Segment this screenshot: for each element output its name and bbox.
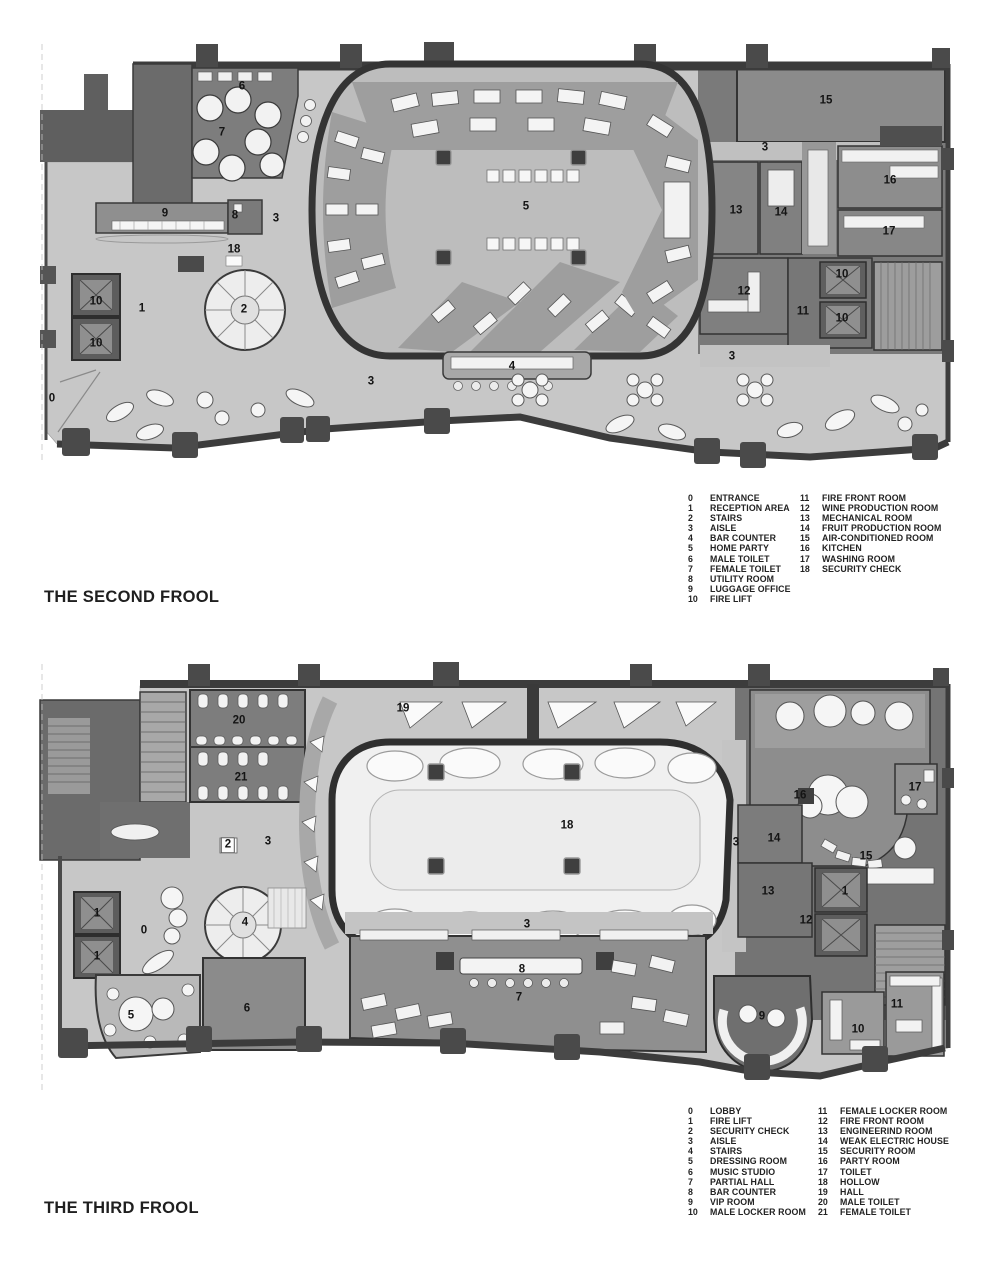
legend-number: 21: [818, 1207, 840, 1217]
legend-number: 18: [800, 564, 822, 574]
legend-label: MUSIC STUDIO: [710, 1167, 775, 1177]
legend-row: 18SECURITY CHECK: [800, 564, 941, 574]
plan2-spiral-stair: [205, 270, 285, 350]
legend-label: LUGGAGE OFFICE: [710, 584, 791, 594]
third-floor-plan-drawing: [0, 660, 1000, 1090]
legend-label: FRUIT PRODUCTION ROOM: [822, 523, 941, 533]
legend-label: PARTIAL HALL: [710, 1177, 774, 1187]
legend-row: 0ENTRANCE: [688, 493, 791, 503]
legend-number: 1: [688, 503, 710, 513]
legend-number: 18: [818, 1177, 840, 1187]
legend-row: 10FIRE LIFT: [688, 594, 791, 604]
legend-row: 2SECURITY CHECK: [688, 1126, 806, 1136]
legend-label: KITCHEN: [822, 543, 862, 553]
plan3-right-wing: [722, 688, 948, 1020]
legend-row: 2STAIRS: [688, 513, 791, 523]
legend-row: 0LOBBY: [688, 1106, 806, 1116]
legend-label: HALL: [840, 1187, 864, 1197]
legend-row: 1RECEPTION AREA: [688, 503, 791, 513]
legend-number: 2: [688, 1126, 710, 1136]
legend-number: 8: [688, 1187, 710, 1197]
legend-row: 1FIRE LIFT: [688, 1116, 806, 1126]
legend-label: DRESSING ROOM: [710, 1156, 787, 1166]
legend-number: 14: [818, 1136, 840, 1146]
legend-label: AIR-CONDITIONED ROOM: [822, 533, 933, 543]
legend-label: SECURITY ROOM: [840, 1146, 915, 1156]
legend-number: 0: [688, 493, 710, 503]
legend-number: 4: [688, 1146, 710, 1156]
legend-number: 6: [688, 554, 710, 564]
legend-label: WASHING ROOM: [822, 554, 895, 564]
legend-label: MALE TOILET: [710, 554, 770, 564]
legend-number: 9: [688, 584, 710, 594]
legend-row: 14WEAK ELECTRIC HOUSE: [818, 1136, 949, 1146]
legend-number: 2: [688, 513, 710, 523]
legend-number: 4: [688, 533, 710, 543]
legend-number: 17: [800, 554, 822, 564]
legend-row: 12WINE PRODUCTION ROOM: [800, 503, 941, 513]
legend-label: MALE LOCKER ROOM: [710, 1207, 806, 1217]
legend-row: 19HALL: [818, 1187, 949, 1197]
legend-number: 15: [818, 1146, 840, 1156]
legend-number: 3: [688, 523, 710, 533]
second-floor-title: THE SECOND FROOL: [44, 588, 219, 607]
legend-number: 10: [688, 594, 710, 604]
legend-number: 5: [688, 1156, 710, 1166]
legend-row: 16PARTY ROOM: [818, 1156, 949, 1166]
plan2-home-party-hall: [298, 64, 713, 356]
legend-label: WINE PRODUCTION ROOM: [822, 503, 938, 513]
legend-label: FIRE LIFT: [710, 594, 752, 604]
legend-label: ENGINEERIND ROOM: [840, 1126, 933, 1136]
legend-label: FEMALE LOCKER ROOM: [840, 1106, 947, 1116]
legend-label: FIRE FRONT ROOM: [840, 1116, 924, 1126]
legend-number: 12: [818, 1116, 840, 1126]
plan2-fire-lifts: [72, 274, 120, 360]
legend-label: AISLE: [710, 523, 736, 533]
legend-column: 11FIRE FRONT ROOM12WINE PRODUCTION ROOM1…: [800, 493, 941, 574]
legend-number: 14: [800, 523, 822, 533]
legend-label: WEAK ELECTRIC HOUSE: [840, 1136, 949, 1146]
legend-label: FEMALE TOILET: [840, 1207, 911, 1217]
legend-row: 9VIP ROOM: [688, 1197, 806, 1207]
legend-label: STAIRS: [710, 513, 742, 523]
legend-number: 13: [800, 513, 822, 523]
legend-row: 6MALE TOILET: [688, 554, 791, 564]
legend-label: VIP ROOM: [710, 1197, 755, 1207]
legend-number: 10: [688, 1207, 710, 1217]
legend-column: 0LOBBY1FIRE LIFT2SECURITY CHECK3AISLE4ST…: [688, 1106, 806, 1217]
legend-row: 10MALE LOCKER ROOM: [688, 1207, 806, 1217]
legend-row: 5HOME PARTY: [688, 543, 791, 553]
legend-column: 0ENTRANCE1RECEPTION AREA2STAIRS3AISLE4BA…: [688, 493, 791, 604]
plan3-left-stairs: [40, 692, 190, 860]
legend-number: 5: [688, 543, 710, 553]
legend-number: 1: [688, 1116, 710, 1126]
legend-label: SECURITY CHECK: [710, 1126, 789, 1136]
plan3-partial-hall: [345, 912, 713, 1052]
legend-row: 11FIRE FRONT ROOM: [800, 493, 941, 503]
plan3-music-studio: [203, 958, 305, 1050]
legend-row: 20MALE TOILET: [818, 1197, 949, 1207]
legend-label: STAIRS: [710, 1146, 742, 1156]
legend-number: 13: [818, 1126, 840, 1136]
legend-third-floor: 0LOBBY1FIRE LIFT2SECURITY CHECK3AISLE4ST…: [688, 1106, 806, 1217]
legend-row: 3AISLE: [688, 523, 791, 533]
legend-label: UTILITY ROOM: [710, 574, 774, 584]
legend-number: 15: [800, 533, 822, 543]
legend-number: 7: [688, 1177, 710, 1187]
plan2-toilets: [192, 68, 298, 181]
second-floor-plan-drawing: [0, 40, 1000, 470]
legend-number: 0: [688, 1106, 710, 1116]
legend-number: 8: [688, 574, 710, 584]
legend-label: RECEPTION AREA: [710, 503, 790, 513]
legend-number: 20: [818, 1197, 840, 1207]
legend-label: FIRE LIFT: [710, 1116, 752, 1126]
legend-label: SECURITY CHECK: [822, 564, 901, 574]
legend-number: 17: [818, 1167, 840, 1177]
plan3-toilets: [190, 690, 305, 802]
legend-row: 18HOLLOW: [818, 1177, 949, 1187]
legend-label: MECHANICAL ROOM: [822, 513, 912, 523]
legend-row: 16KITCHEN: [800, 543, 941, 553]
legend-row: 15SECURITY ROOM: [818, 1146, 949, 1156]
legend-row: 13MECHANICAL ROOM: [800, 513, 941, 523]
legend-row: 9LUGGAGE OFFICE: [688, 584, 791, 594]
plan3-security-kiosk: [220, 838, 237, 853]
legend-row: 21FEMALE TOILET: [818, 1207, 949, 1217]
plan3-fire-lifts: [74, 892, 120, 978]
legend-label: MALE TOILET: [840, 1197, 900, 1207]
legend-label: LOBBY: [710, 1106, 741, 1116]
legend-row: 8UTILITY ROOM: [688, 574, 791, 584]
floor-plan-sheet: 6798318515313141617101012121110100343 20…: [0, 0, 1000, 1264]
legend-label: BAR COUNTER: [710, 533, 776, 543]
legend-row: 17WASHING ROOM: [800, 554, 941, 564]
legend-row: 12FIRE FRONT ROOM: [818, 1116, 949, 1126]
legend-number: 7: [688, 564, 710, 574]
legend-number: 19: [818, 1187, 840, 1197]
third-floor-title: THE THIRD FROOL: [44, 1199, 199, 1218]
legend-row: 13ENGINEERIND ROOM: [818, 1126, 949, 1136]
legend-label: FIRE FRONT ROOM: [822, 493, 906, 503]
legend-row: 6MUSIC STUDIO: [688, 1167, 806, 1177]
legend-second-floor: 0ENTRANCE1RECEPTION AREA2STAIRS3AISLE4BA…: [688, 493, 791, 604]
legend-row: 8BAR COUNTER: [688, 1187, 806, 1197]
legend-row: 7FEMALE TOILET: [688, 564, 791, 574]
legend-label: AISLE: [710, 1136, 736, 1146]
legend-label: PARTY ROOM: [840, 1156, 900, 1166]
legend-row: 15AIR-CONDITIONED ROOM: [800, 533, 941, 543]
legend-number: 11: [800, 493, 822, 503]
legend-label: BAR COUNTER: [710, 1187, 776, 1197]
legend-number: 16: [800, 543, 822, 553]
legend-column: 11FEMALE LOCKER ROOM12FIRE FRONT ROOM13E…: [818, 1106, 949, 1217]
legend-number: 9: [688, 1197, 710, 1207]
legend-label: FEMALE TOILET: [710, 564, 781, 574]
legend-row: 14FRUIT PRODUCTION ROOM: [800, 523, 941, 533]
legend-row: 3AISLE: [688, 1136, 806, 1146]
legend-label: HOME PARTY: [710, 543, 769, 553]
legend-number: 6: [688, 1167, 710, 1177]
plan2-right-wing: [698, 64, 948, 367]
legend-label: ENTRANCE: [710, 493, 760, 503]
legend-row: 4BAR COUNTER: [688, 533, 791, 543]
legend-row: 7PARTIAL HALL: [688, 1177, 806, 1187]
legend-row: 17TOILET: [818, 1167, 949, 1177]
legend-number: 11: [818, 1106, 840, 1116]
legend-number: 3: [688, 1136, 710, 1146]
legend-row: 11FEMALE LOCKER ROOM: [818, 1106, 949, 1116]
legend-label: TOILET: [840, 1167, 872, 1177]
legend-number: 12: [800, 503, 822, 513]
legend-row: 5DRESSING ROOM: [688, 1156, 806, 1166]
legend-row: 4STAIRS: [688, 1146, 806, 1156]
legend-label: HOLLOW: [840, 1177, 880, 1187]
legend-number: 16: [818, 1156, 840, 1166]
